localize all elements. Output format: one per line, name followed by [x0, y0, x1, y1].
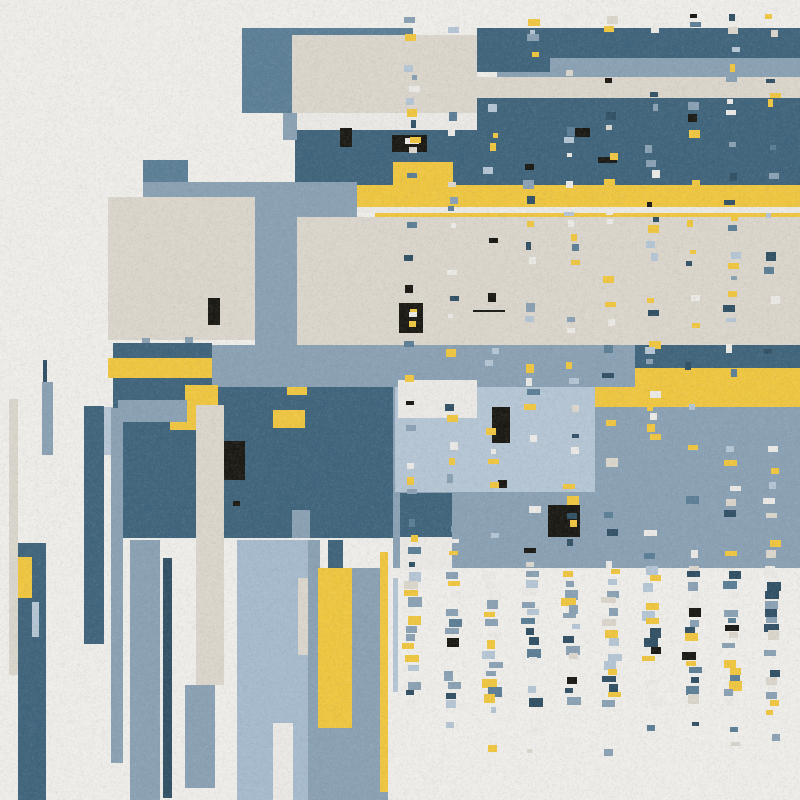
confetti-dot — [650, 413, 657, 420]
confetti-dot — [526, 378, 532, 386]
confetti-dot — [485, 582, 498, 590]
confetti-dot — [406, 401, 414, 405]
confetti-dot — [564, 137, 573, 143]
confetti-dot — [526, 562, 533, 567]
confetti-dot — [766, 617, 777, 623]
confetti-dot — [404, 700, 419, 705]
confetti-dot — [650, 575, 660, 581]
confetti-dot — [651, 27, 660, 32]
confetti-dot — [766, 213, 771, 218]
confetti-dot — [692, 592, 700, 599]
confetti-dot — [527, 609, 538, 615]
confetti-dot — [448, 682, 461, 689]
confetti-dot — [647, 403, 653, 411]
confetti-dot — [769, 482, 776, 488]
confetti-dot — [605, 78, 612, 83]
confetti-dot — [448, 127, 455, 136]
confetti-dot — [526, 303, 535, 312]
confetti-dot — [768, 446, 778, 452]
confetti-dot — [763, 498, 775, 504]
confetti-dot — [450, 442, 458, 450]
confetti-dot — [723, 305, 734, 312]
confetti-dot — [686, 661, 696, 666]
confetti-dot — [412, 75, 417, 80]
confetti-dot — [572, 405, 579, 412]
confetti-dot — [572, 434, 578, 439]
confetti-dot — [405, 375, 415, 381]
confetti-dot — [486, 544, 498, 548]
confetti-dot — [724, 610, 738, 617]
confetti-dot — [446, 572, 458, 580]
confetti-dot — [688, 582, 698, 590]
confetti-dot — [523, 180, 534, 189]
confetti-dot — [521, 618, 536, 624]
confetti-dot — [648, 185, 659, 193]
confetti-dot — [691, 509, 700, 514]
confetti-dot — [446, 700, 456, 708]
confetti-dot — [731, 213, 738, 221]
confetti-dot — [405, 655, 419, 662]
confetti-dot — [647, 725, 655, 730]
confetti-dot — [686, 496, 698, 504]
confetti-dot — [729, 571, 741, 579]
confetti-dot — [567, 677, 578, 684]
confetti-dot — [689, 667, 703, 672]
confetti-dot — [653, 217, 658, 221]
confetti-dot — [448, 27, 458, 33]
confetti-dot — [723, 581, 737, 589]
confetti-dot — [525, 528, 537, 534]
confetti-dot — [692, 415, 698, 421]
confetti-dot — [691, 550, 698, 558]
confetti-dot — [488, 459, 499, 464]
confetti-dot — [651, 647, 661, 654]
confetti-dot — [771, 468, 779, 474]
confetti-dot — [448, 314, 453, 318]
confetti-dot — [770, 373, 781, 381]
confetti-dot — [491, 707, 496, 713]
confetti-dot — [446, 609, 458, 616]
confetti-dot — [408, 665, 419, 671]
confetti-dot — [406, 425, 415, 430]
confetti-dot — [408, 616, 421, 625]
confetti-dot — [404, 17, 415, 24]
confetti-dot — [644, 530, 657, 536]
confetti-dot — [765, 14, 771, 18]
confetti-dot — [606, 125, 611, 130]
confetti-dot — [768, 630, 778, 639]
confetti-dot — [527, 389, 540, 395]
confetti-dot — [449, 551, 458, 555]
confetti-dot — [566, 70, 573, 76]
confetti-dot — [487, 640, 496, 649]
confetti-dot — [772, 734, 780, 741]
confetti-dot — [448, 182, 456, 186]
confetti-dot — [607, 219, 613, 224]
confetti-dot — [526, 242, 531, 250]
confetti-dot — [724, 510, 736, 518]
confetti-dot — [689, 130, 700, 138]
confetti-dot — [686, 599, 699, 609]
confetti-dot — [730, 64, 735, 71]
confetti-dot — [447, 638, 459, 647]
confetti-dot — [488, 745, 498, 752]
confetti-dot — [568, 220, 575, 226]
confetti-dot — [726, 110, 736, 115]
confetti-dot — [765, 609, 777, 617]
confetti-dot — [491, 533, 499, 538]
confetti-dot — [529, 657, 537, 665]
confetti-dot — [491, 449, 496, 454]
confetti-dot — [729, 142, 736, 147]
confetti-dot — [766, 79, 775, 84]
confetti-dot — [608, 692, 622, 698]
confetti-dot — [451, 223, 456, 228]
confetti-dot — [525, 316, 535, 322]
confetti-dot — [404, 581, 418, 589]
confetti-dot — [567, 513, 577, 519]
confetti-dot — [726, 318, 737, 322]
confetti-dot — [725, 551, 737, 557]
confetti-dot — [492, 348, 499, 353]
confetti-dot — [606, 458, 617, 467]
confetti-dot — [406, 626, 417, 633]
confetti-dot — [524, 548, 536, 553]
abstract-artwork — [0, 0, 800, 800]
confetti-dot — [728, 618, 737, 623]
confetti-dot — [527, 34, 538, 41]
confetti-dot — [728, 263, 739, 269]
confetti-dot — [764, 570, 778, 578]
confetti-dot — [607, 16, 618, 24]
confetti-dot — [724, 200, 735, 205]
confetti-dot — [571, 447, 578, 454]
confetti-dot — [692, 323, 700, 328]
confetti-dot — [411, 120, 417, 127]
confetti-dot — [650, 698, 662, 706]
confetti-dot — [527, 749, 532, 753]
confetti-dot — [522, 602, 535, 608]
confetti-dot — [730, 668, 741, 675]
confetti-dot — [404, 255, 413, 260]
confetti-dot — [407, 173, 417, 178]
confetti-dot — [650, 628, 661, 638]
confetti-dot — [764, 267, 774, 274]
confetti-dot — [567, 153, 573, 157]
confetti-dot — [766, 692, 777, 699]
confetti-dot — [407, 489, 417, 494]
confetti-dot — [644, 638, 658, 647]
confetti-dot — [410, 137, 422, 143]
confetti-dot — [645, 145, 652, 153]
confetti-dot — [726, 446, 734, 452]
confetti-dot — [564, 212, 574, 217]
confetti-dot — [602, 676, 616, 682]
confetti-dot — [445, 404, 454, 411]
confetti-dot — [691, 295, 700, 301]
confetti-dot — [567, 496, 579, 504]
confetti-dot — [729, 14, 736, 21]
confetti-dot — [524, 404, 536, 410]
confetti-dot — [567, 697, 580, 706]
confetti-dot — [766, 513, 778, 518]
confetti-dot — [565, 688, 573, 694]
confetti-dot — [646, 241, 655, 248]
confetti-dot — [488, 293, 495, 302]
confetti-dot — [726, 344, 733, 353]
confetti-dot — [529, 698, 542, 707]
confetti-dot — [489, 238, 498, 244]
confetti-dot — [645, 680, 658, 685]
confetti-dot — [770, 700, 779, 707]
confetti-dot — [601, 597, 616, 603]
confetti-dot — [451, 526, 458, 533]
confetti-dot — [729, 592, 737, 598]
confetti-dot — [648, 310, 659, 316]
confetti-dot — [731, 742, 740, 747]
confetti-dot — [770, 145, 775, 150]
confetti-dot — [568, 196, 576, 205]
confetti-dot — [569, 653, 578, 659]
confetti-dot — [770, 93, 781, 98]
confetti-dot — [606, 237, 613, 245]
confetti-dot — [448, 581, 460, 586]
confetti-dot — [722, 643, 735, 648]
confetti-dot — [646, 603, 658, 609]
confetti-dot — [488, 104, 498, 112]
confetti-dot — [725, 625, 739, 630]
confetti-dot — [529, 506, 541, 514]
confetti-dot — [445, 628, 459, 633]
confetti-dot — [728, 291, 738, 297]
confetti-dot — [404, 341, 415, 347]
confetti-dot — [652, 170, 659, 179]
confetti-dot — [450, 431, 461, 435]
confetti-dot — [572, 244, 579, 250]
confetti-dot — [406, 450, 418, 456]
confetti-dot — [566, 181, 573, 188]
confetti-dot — [604, 345, 613, 352]
confetti-dot — [771, 30, 778, 37]
confetti-dot — [603, 276, 614, 283]
confetti-dot — [690, 14, 697, 18]
confetti-dot — [406, 634, 415, 642]
confetti-dot — [567, 127, 576, 135]
confetti-dot — [482, 651, 495, 659]
confetti-dot — [728, 225, 736, 232]
confetti-dot — [486, 671, 497, 676]
confetti-dot — [766, 677, 778, 685]
confetti-dot — [488, 733, 497, 738]
confetti-dot — [604, 512, 613, 517]
confetti-dot — [528, 686, 536, 693]
confetti-dot — [686, 686, 698, 695]
confetti-dot — [647, 298, 653, 303]
confetti-dot — [408, 597, 421, 607]
confetti-dot — [609, 608, 617, 616]
confetti-dot — [731, 252, 741, 260]
confetti-dot — [407, 222, 417, 227]
confetti-dot — [402, 643, 413, 649]
confetti-dot — [687, 220, 692, 227]
confetti-dot — [409, 562, 415, 567]
confetti-dot — [606, 112, 616, 121]
confetti-dot — [484, 612, 495, 617]
confetti-layer — [0, 0, 800, 800]
confetti-dot — [408, 547, 421, 553]
confetti-dot — [605, 302, 615, 307]
confetti-dot — [529, 257, 536, 264]
confetti-dot — [563, 636, 574, 643]
confetti-dot — [449, 619, 462, 627]
confetti-dot — [488, 194, 497, 200]
confetti-dot — [682, 652, 696, 660]
confetti-dot — [526, 364, 534, 372]
confetti-dot — [607, 529, 618, 536]
confetti-dot — [444, 671, 453, 681]
confetti-dot — [651, 253, 657, 261]
confetti-dot — [525, 164, 535, 170]
confetti-dot — [566, 581, 574, 586]
confetti-dot — [642, 656, 655, 661]
confetti-dot — [411, 535, 417, 542]
confetti-dot — [490, 482, 500, 488]
confetti-dot — [567, 317, 575, 322]
confetti-dot — [530, 435, 537, 442]
confetti-dot — [769, 173, 779, 180]
confetti-dot — [686, 261, 692, 266]
confetti-dot — [647, 202, 652, 207]
confetti-dot — [405, 34, 416, 41]
confetti-dot — [685, 633, 698, 641]
confetti-dot — [448, 206, 454, 211]
confetti-dot — [450, 197, 458, 204]
confetti-dot — [409, 519, 415, 527]
confetti-dot — [485, 360, 493, 366]
confetti-dot — [730, 727, 738, 732]
confetti-dot — [522, 588, 536, 596]
confetti-dot — [685, 362, 690, 371]
confetti-dot — [526, 580, 537, 587]
confetti-dot — [567, 539, 573, 545]
confetti-dot — [606, 420, 616, 426]
confetti-dot — [489, 591, 502, 600]
confetti-dot — [606, 210, 613, 216]
confetti-dot — [482, 571, 496, 580]
confetti-dot — [493, 133, 498, 137]
confetti-dot — [527, 196, 535, 204]
confetti-dot — [732, 47, 740, 51]
confetti-dot — [730, 173, 737, 181]
confetti-dot — [407, 109, 417, 117]
confetti-dot — [608, 654, 621, 660]
confetti-dot — [409, 312, 417, 317]
confetti-dot — [449, 112, 458, 120]
confetti-dot — [730, 486, 741, 490]
confetti-dot — [729, 632, 738, 638]
confetti-dot — [409, 86, 420, 92]
confetti-dot — [529, 729, 538, 734]
confetti-dot — [690, 22, 700, 27]
confetti-dot — [647, 424, 654, 433]
confetti-dot — [689, 394, 695, 402]
confetti-dot — [451, 364, 457, 368]
confetti-dot — [563, 613, 576, 619]
confetti-dot — [644, 553, 655, 559]
confetti-dot — [728, 27, 738, 34]
confetti-dot — [602, 619, 616, 626]
confetti-dot — [409, 147, 417, 153]
confetti-dot — [646, 618, 659, 624]
confetti-dot — [447, 270, 456, 275]
confetti-dot — [484, 694, 496, 703]
confetti-dot — [766, 710, 773, 715]
confetti-dot — [528, 19, 540, 27]
confetti-dot — [446, 349, 457, 357]
confetti-dot — [611, 569, 619, 575]
confetti-dot — [767, 582, 781, 591]
confetti-dot — [407, 477, 413, 484]
confetti-dot — [687, 571, 700, 577]
confetti-dot — [765, 423, 775, 431]
confetti-dot — [450, 591, 461, 600]
confetti-dot — [647, 569, 658, 574]
confetti-dot — [690, 250, 696, 255]
confetti-dot — [648, 225, 659, 234]
confetti-dot — [688, 114, 696, 122]
confetti-dot — [532, 52, 540, 56]
confetti-dot — [485, 619, 498, 627]
confetti-dot — [604, 179, 615, 186]
confetti-dot — [602, 700, 614, 707]
confetti-dot — [608, 579, 618, 585]
confetti-dot — [526, 571, 539, 577]
confetti-dot — [764, 349, 772, 354]
confetti-dot — [688, 445, 698, 450]
confetti-dot — [724, 697, 733, 706]
confetti-dot — [526, 628, 535, 634]
confetti-dot — [612, 398, 617, 406]
confetti-dot — [446, 693, 456, 699]
confetti-dot — [726, 75, 737, 82]
confetti-dot — [650, 434, 661, 440]
confetti-dot — [724, 460, 737, 466]
confetti-dot — [526, 537, 539, 546]
confetti-dot — [650, 92, 658, 97]
confetti-dot — [646, 160, 656, 167]
confetti-dot — [404, 590, 418, 596]
confetti-dot — [527, 221, 534, 227]
confetti-dot — [688, 102, 699, 109]
confetti-dot — [688, 694, 698, 704]
confetti-dot — [447, 415, 457, 422]
confetti-dot — [450, 539, 459, 543]
confetti-dot — [446, 722, 454, 728]
confetti-dot — [571, 260, 580, 265]
confetti-dot — [646, 359, 652, 363]
confetti-dot — [765, 323, 776, 331]
confetti-dot — [731, 276, 737, 280]
confetti-dot — [689, 608, 702, 616]
confetti-dot — [609, 638, 619, 646]
confetti-dot — [450, 296, 459, 301]
confetti-dot — [650, 391, 661, 398]
confetti-dot — [406, 98, 415, 105]
confetti-dot — [604, 749, 613, 756]
confetti-dot — [770, 540, 782, 547]
confetti-dot — [490, 493, 502, 501]
confetti-dot — [727, 99, 733, 104]
